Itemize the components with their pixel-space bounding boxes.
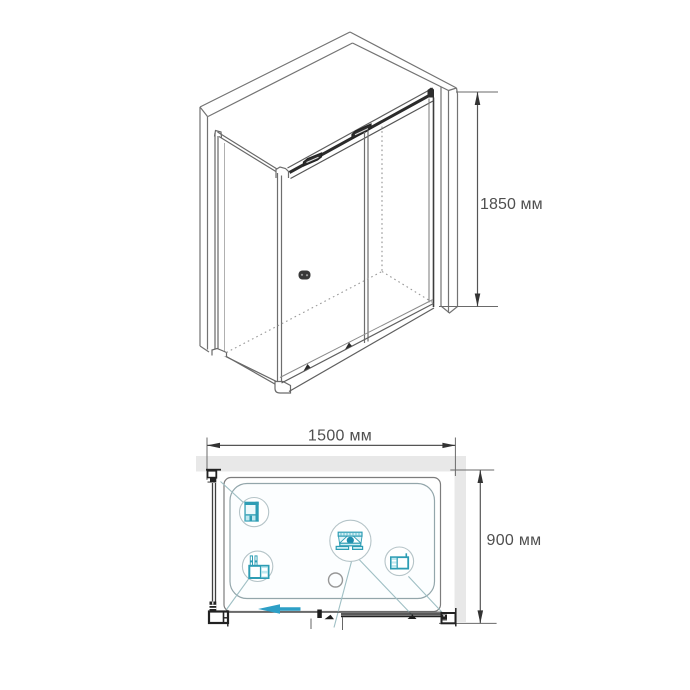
svg-text:900 мм: 900 мм [487,532,542,549]
svg-text:1850 мм: 1850 мм [480,196,543,213]
svg-text:1500 мм: 1500 мм [308,428,372,445]
